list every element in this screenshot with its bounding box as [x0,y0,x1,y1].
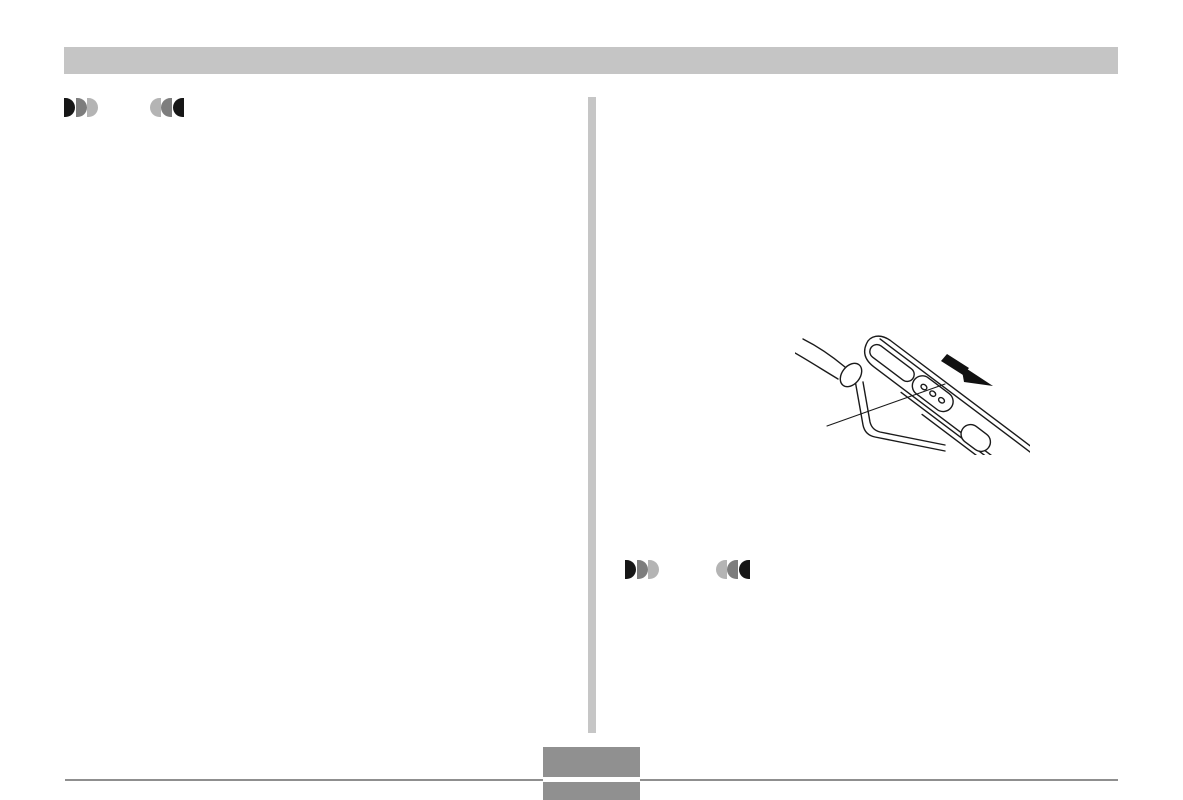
fast-forward-icon-segment [648,560,659,579]
fast-forward-icon-segment [637,560,648,579]
slide-direction-arrow-icon [941,354,993,386]
header-bar [64,47,1118,74]
rewind-icon-segment [173,98,184,117]
rewind-icon [149,98,184,117]
fast-forward-icon-segment [64,98,75,117]
footer-rule-right [640,779,1118,781]
device-body [852,330,1030,455]
page-number-box-bottom [543,782,640,800]
fast-forward-icon-segment [87,98,98,117]
fast-forward-icon-segment [625,560,636,579]
rewind-icon-segment [739,560,750,579]
rewind-icon-segment [150,98,161,117]
page-number-box-top [543,747,640,777]
fast-forward-icon [625,560,660,579]
fast-forward-icon-segment [76,98,87,117]
device-illustration [795,325,1030,455]
fast-forward-icon [64,98,99,117]
rewind-icon [715,560,750,579]
manual-page [0,0,1183,800]
rewind-icon-segment [161,98,172,117]
column-divider [588,97,596,733]
rewind-icon-segment [727,560,738,579]
rewind-icon-segment [716,560,727,579]
strap-cord-lines [795,339,845,379]
footer-rule-left [65,779,543,781]
